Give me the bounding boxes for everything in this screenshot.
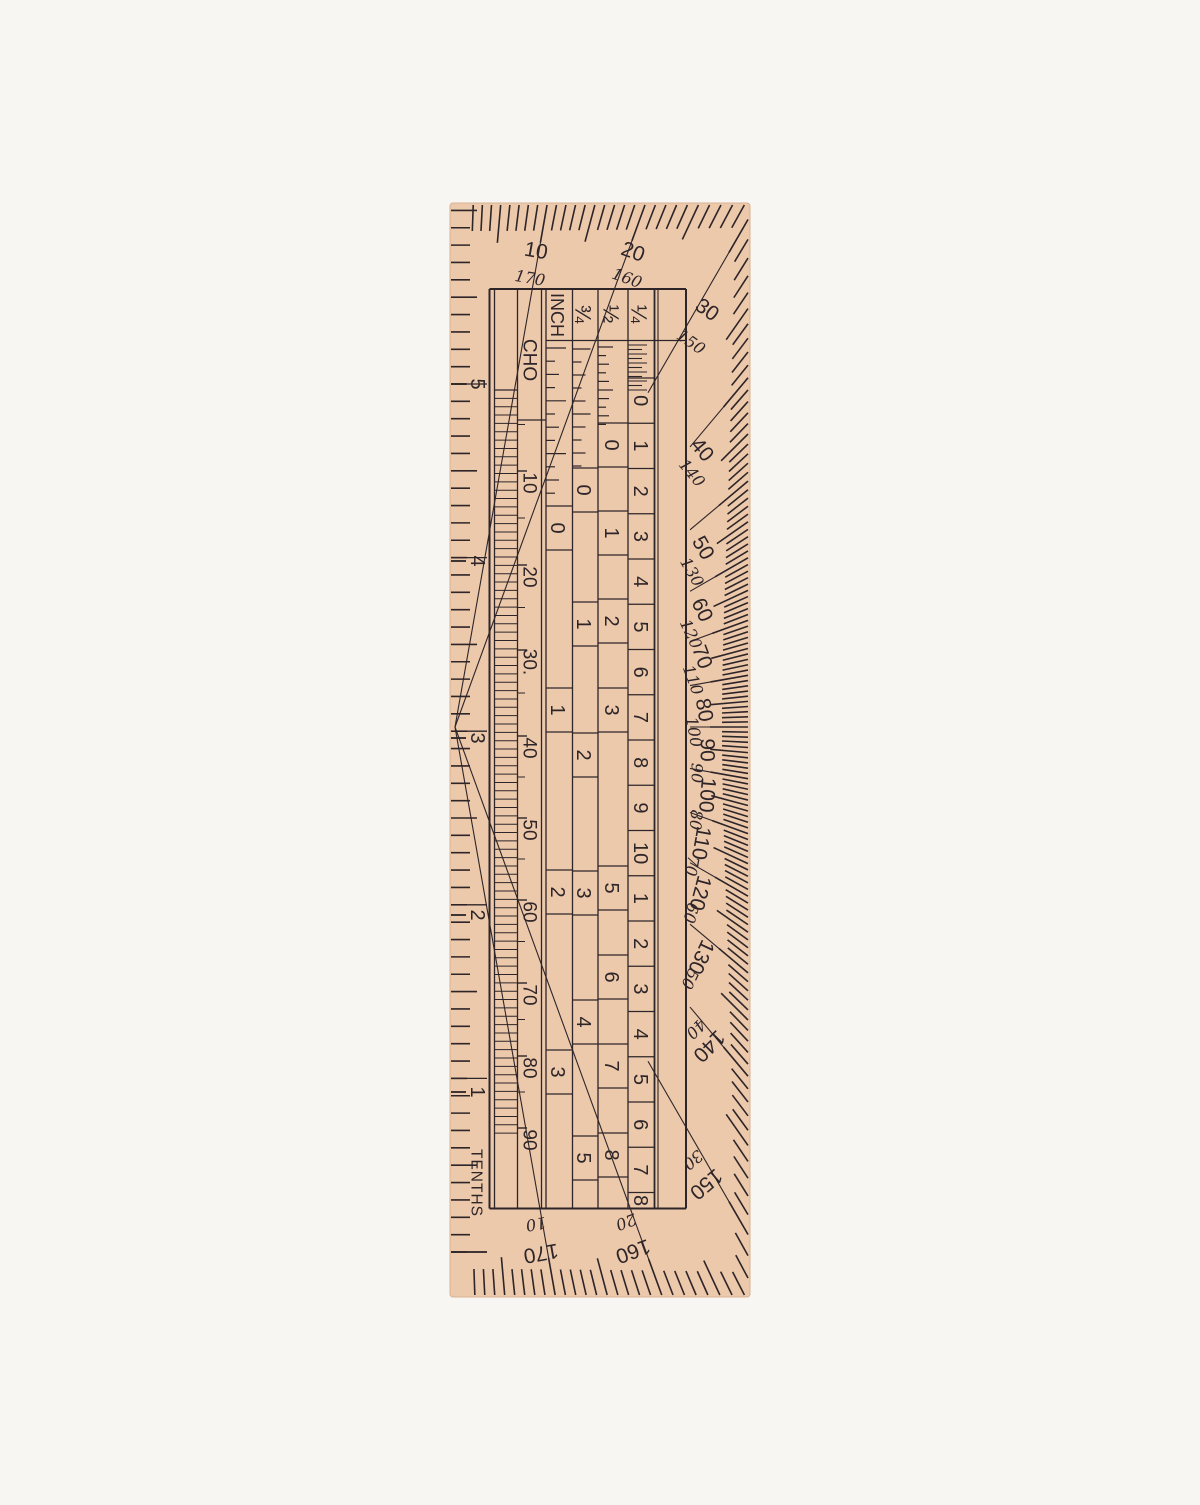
quarter-inch-label: ¼ bbox=[627, 305, 652, 324]
tenths-scale-number: 3 bbox=[466, 732, 488, 743]
quarter-inch-column-number: 5 bbox=[629, 621, 651, 632]
quarter-inch-column-number: 3 bbox=[629, 531, 651, 542]
quarter-inch-column-number: 6 bbox=[629, 667, 651, 678]
half-inch-column-number: 7 bbox=[600, 1060, 622, 1071]
tenths-scale-number: 1 bbox=[466, 1086, 488, 1097]
quarter-inch-column-number: 8 bbox=[629, 757, 651, 768]
three-quarter-inch-column-number: 4 bbox=[572, 1016, 594, 1027]
quarter-inch-column-number: 1 bbox=[629, 893, 651, 904]
three-quarter-inch-column-number: 0 bbox=[572, 484, 594, 495]
three-quarter-inch-column-number: 1 bbox=[572, 618, 594, 629]
inch-scale-label: INCH bbox=[547, 293, 567, 337]
one-inch-column-number: 2 bbox=[546, 886, 568, 897]
tenths-scale-label: TENTHS bbox=[468, 1149, 485, 1217]
quarter-inch-column-number: 3 bbox=[629, 983, 651, 994]
quarter-inch-column-number: 8 bbox=[629, 1195, 651, 1206]
quarter-inch-column-number: 7 bbox=[629, 712, 651, 723]
cho-scale-number: 90 bbox=[519, 1129, 540, 1150]
cho-scale-label: CHO bbox=[519, 339, 540, 381]
half-inch-label: ½ bbox=[599, 305, 624, 323]
protractor-complement-label: 10 bbox=[524, 1213, 547, 1235]
cho-scale-number: 30. bbox=[519, 649, 540, 675]
cho-scale-number: 50 bbox=[519, 819, 540, 840]
half-inch-column-number: 2 bbox=[600, 615, 622, 626]
quarter-inch-column-number: 2 bbox=[629, 486, 651, 497]
half-inch-column-number: 5 bbox=[600, 882, 622, 893]
cho-scale-number: 70 bbox=[519, 984, 540, 1005]
half-inch-column-number: 1 bbox=[600, 527, 622, 538]
half-inch-column-number: 0 bbox=[600, 439, 622, 450]
half-inch-column-number: 8 bbox=[600, 1149, 622, 1160]
three-quarter-inch-column-number: 3 bbox=[572, 887, 594, 898]
quarter-inch-column-number: 5 bbox=[629, 1074, 651, 1085]
three-quarter-inch-column-number: 5 bbox=[572, 1152, 594, 1163]
quarter-inch-column-number: 4 bbox=[629, 1029, 651, 1040]
tenths-scale-number: 2 bbox=[466, 909, 488, 920]
scanned-ruler-photo: 1017020160301504014050130601207011080100… bbox=[0, 0, 1200, 1500]
protractor-ruler: 1017020160301504014050130601207011080100… bbox=[0, 0, 1200, 1500]
half-inch-column-number: 3 bbox=[600, 704, 622, 715]
half-inch-column-number: 6 bbox=[600, 971, 622, 982]
protractor-degree-label: 100 bbox=[694, 777, 720, 814]
quarter-inch-column-number: 9 bbox=[629, 802, 651, 813]
quarter-inch-column-number: 4 bbox=[629, 576, 651, 587]
protractor-degree-label: 10 bbox=[523, 238, 550, 265]
three-quarter-inch-label: ¾ bbox=[571, 305, 596, 324]
one-inch-column-number: 0 bbox=[546, 522, 568, 533]
quarter-inch-column-number: 10 bbox=[629, 842, 651, 864]
protractor-degree-label: 90 bbox=[696, 738, 719, 761]
three-quarter-inch-column-number: 2 bbox=[572, 749, 594, 760]
tenths-scale-number: 4 bbox=[466, 555, 488, 566]
quarter-inch-column-number: 6 bbox=[629, 1119, 651, 1130]
quarter-inch-column-number: 0 bbox=[629, 395, 651, 406]
cho-scale-number: 10 bbox=[519, 472, 540, 493]
quarter-inch-column-number: 7 bbox=[629, 1164, 651, 1175]
quarter-inch-column-number: 2 bbox=[629, 938, 651, 949]
cho-scale-number: 80 bbox=[519, 1057, 540, 1078]
one-inch-column-number: 1 bbox=[546, 704, 568, 715]
one-inch-column-number: 3 bbox=[546, 1066, 568, 1077]
cho-scale-number: 40 bbox=[519, 737, 540, 758]
tenths-scale-number: 5 bbox=[466, 378, 488, 389]
cho-scale-number: 60 bbox=[519, 901, 540, 922]
quarter-inch-column-number: 1 bbox=[629, 440, 651, 451]
cho-scale-number: 20 bbox=[519, 566, 540, 587]
